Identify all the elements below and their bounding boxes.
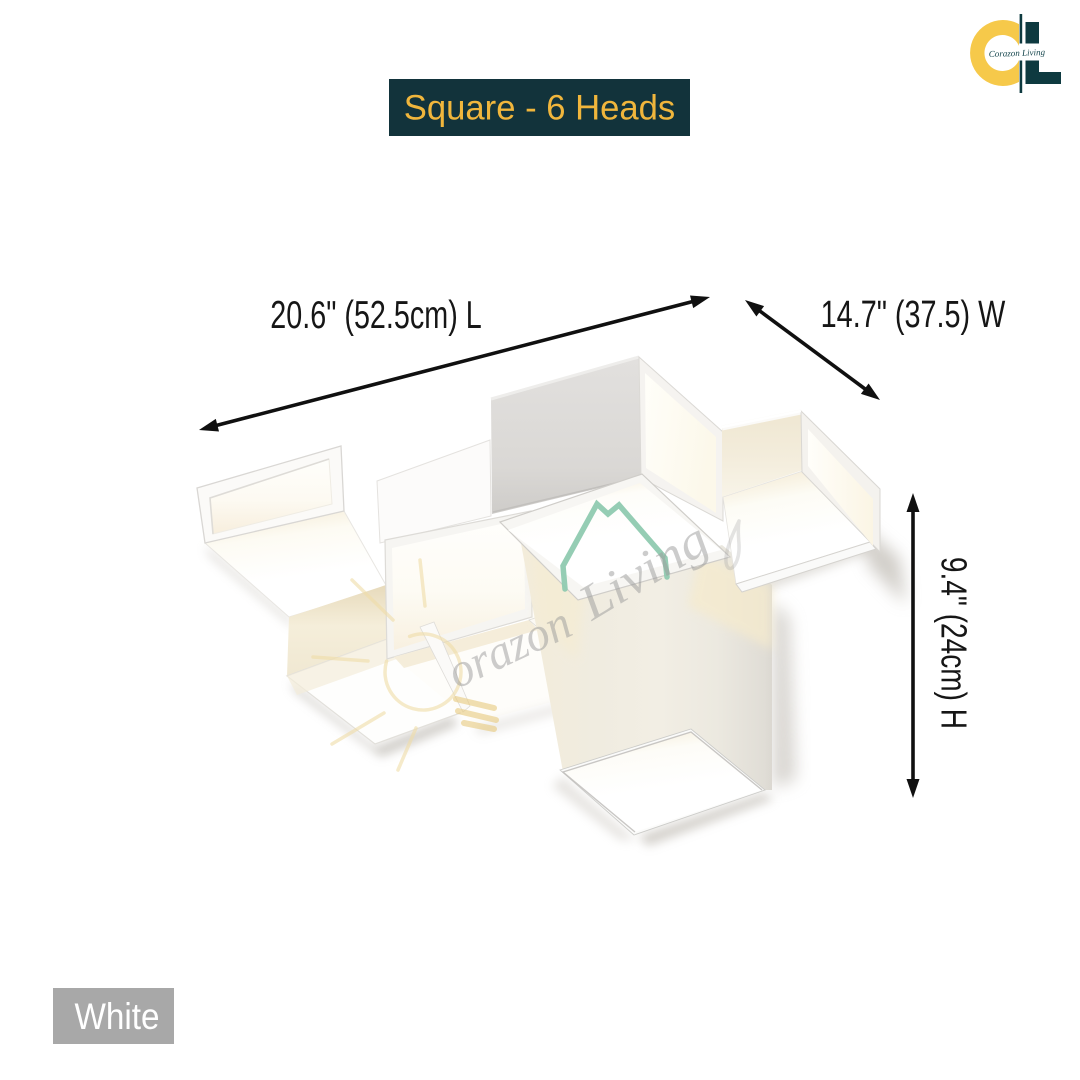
svg-text:20.6" (52.5cm) L: 20.6" (52.5cm) L	[270, 294, 481, 337]
svg-text:9.4" (24cm) H: 9.4" (24cm) H	[934, 557, 974, 729]
svg-text:14.7" (37.5) W: 14.7" (37.5) W	[821, 293, 1006, 336]
svg-text:White: White	[74, 996, 159, 1037]
svg-text:Corazon Living: Corazon Living	[989, 47, 1046, 59]
svg-text:Square - 6 Heads: Square - 6 Heads	[404, 88, 675, 127]
